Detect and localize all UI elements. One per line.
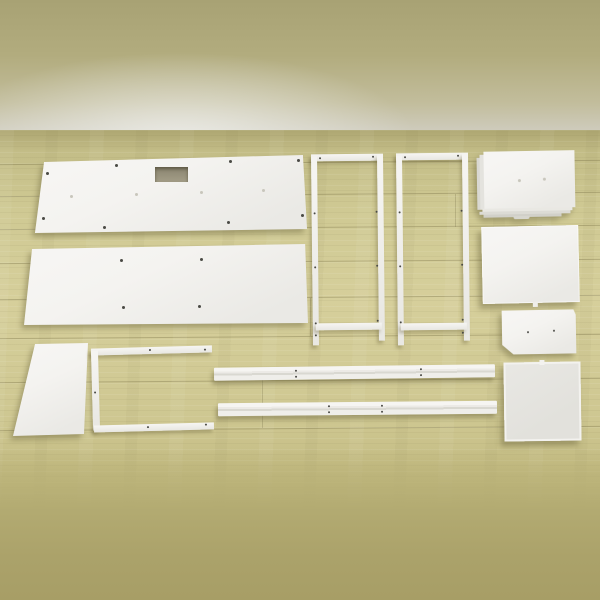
dowel-hole: [200, 191, 203, 194]
small-panel-right: [502, 309, 577, 354]
screw-hole: [147, 426, 149, 428]
screw-hole: [204, 349, 206, 351]
dowel-hole: [543, 178, 546, 181]
screw-hole: [420, 368, 422, 370]
shelf-stack: [476, 150, 575, 220]
screw-hole: [319, 157, 321, 159]
screw-hole: [457, 155, 459, 157]
screw-hole: [46, 172, 49, 175]
screw-hole: [301, 214, 304, 217]
side-frame-left: [311, 154, 385, 346]
screw-hole: [404, 156, 406, 158]
screw-hole: [381, 405, 383, 407]
screw-hole: [376, 265, 378, 267]
background-wall: [0, 0, 600, 132]
screw-hole: [122, 306, 125, 309]
screw-hole: [420, 374, 422, 376]
screw-hole: [315, 334, 317, 336]
panel-long-top: [33, 153, 309, 235]
screw-hole: [462, 319, 464, 321]
screw-hole: [198, 305, 201, 308]
handle-cutout: [155, 167, 188, 182]
screw-hole: [553, 330, 555, 332]
rail-bottom: [218, 401, 497, 416]
screw-hole: [461, 264, 463, 266]
screw-hole: [205, 424, 207, 426]
u-frame: [91, 345, 214, 432]
screw-hole: [376, 211, 378, 213]
frame-bottom-rail: [401, 323, 467, 331]
dowel-hole: [262, 189, 265, 192]
square-panel-bottom: [503, 361, 581, 441]
screw-hole: [314, 266, 316, 268]
small-panel-left: [12, 342, 89, 437]
screw-hole: [103, 226, 106, 229]
screw-hole: [315, 322, 317, 324]
dowel-hole: [518, 179, 521, 182]
floor-plank-end-seam: [310, 298, 311, 336]
screw-hole: [399, 211, 401, 213]
screw-hole: [229, 160, 232, 163]
panel-long-bottom-face: [22, 242, 308, 326]
frame-bottom-rail: [316, 323, 382, 331]
screw-hole: [381, 411, 383, 413]
dowel-hole: [135, 193, 138, 196]
screw-hole: [399, 265, 401, 267]
screw-hole: [462, 332, 464, 334]
screw-hole: [372, 156, 374, 158]
screw-hole: [400, 321, 402, 323]
panel-long-bottom: [22, 242, 308, 326]
frame-left-leg: [311, 156, 319, 345]
screw-hole: [42, 217, 45, 220]
screw-hole: [94, 391, 96, 393]
screw-hole: [200, 258, 203, 261]
screw-hole: [527, 331, 529, 333]
screw-hole: [377, 320, 379, 322]
square-panel-top: [481, 225, 580, 304]
small-panel-right-face: [502, 309, 577, 354]
screw-hole: [149, 349, 151, 351]
shelf-stack-tab: [514, 216, 530, 219]
shelf-stack-top-board: [483, 150, 575, 209]
screw-hole: [314, 212, 316, 214]
screw-hole: [295, 370, 297, 372]
u-frame-left-rail: [91, 350, 100, 430]
screw-hole: [295, 376, 297, 378]
panel-long-top-face: [33, 153, 309, 235]
dowel-hole: [70, 195, 73, 198]
screw-hole: [120, 259, 123, 262]
furniture-parts-photo: [0, 0, 600, 600]
screw-hole: [227, 221, 230, 224]
screw-hole: [297, 159, 300, 162]
panel-notch: [539, 360, 544, 365]
panel-tab: [533, 302, 538, 307]
small-panel-left-face: [12, 342, 89, 437]
screw-hole: [115, 164, 118, 167]
screw-hole: [328, 405, 330, 407]
screw-hole: [461, 210, 463, 212]
frame-left-leg: [396, 155, 404, 345]
foreground-blur: [0, 448, 600, 600]
screw-hole: [328, 411, 330, 413]
side-frame-right: [396, 153, 470, 346]
